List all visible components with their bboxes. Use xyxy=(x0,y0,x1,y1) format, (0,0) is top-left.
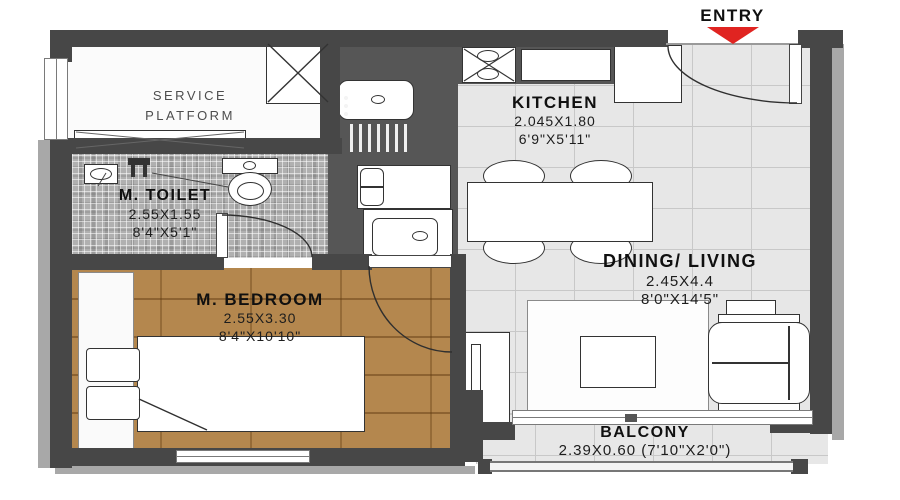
toilet-name: M. TOILET xyxy=(70,186,260,206)
sofa-cushion-line xyxy=(712,362,788,364)
sink-drain-icon xyxy=(371,95,385,104)
dining-living-dim-ft: 8'0"X14'5" xyxy=(540,291,820,310)
entry-label: ENTRY xyxy=(675,5,790,26)
sofa-back-line xyxy=(788,326,790,400)
coffee-table-icon xyxy=(580,336,656,388)
balcony-railing xyxy=(490,461,793,472)
wall-top xyxy=(50,30,668,47)
balcony-dim: 2.39X0.60 (7'10"X2'0") xyxy=(480,442,810,459)
bedroom-dim-ft: 8'4"X10'10" xyxy=(150,328,370,346)
sliding-door-balcony xyxy=(512,410,813,425)
wall-left xyxy=(50,138,72,468)
kitchen-platform xyxy=(521,49,611,81)
sliding-door-handle xyxy=(625,414,637,422)
right-wall-shadow xyxy=(832,44,844,440)
window-service xyxy=(44,58,68,140)
wall-service-right xyxy=(320,30,340,142)
drainboard-icon xyxy=(350,124,412,152)
toilet-dim-ft: 8'4"X5'1" xyxy=(70,224,260,242)
wc-flush-icon xyxy=(243,161,256,170)
kitchen-dim-m: 2.045X1.80 xyxy=(455,113,655,131)
bedroom-name: M. BEDROOM xyxy=(150,289,370,310)
dining-table-icon xyxy=(467,182,653,242)
wall-balcony-left xyxy=(450,390,483,462)
bedroom-dim-m: 2.55X3.30 xyxy=(150,310,370,328)
service-platform-label-line1: SERVICE xyxy=(105,86,275,106)
washing-machine-icon xyxy=(372,218,438,256)
entry-door-leaf xyxy=(789,44,802,104)
wall-toilet-top xyxy=(50,138,342,154)
bedroom-label-block: M. BEDROOM 2.55X3.30 8'4"X10'10" xyxy=(150,289,370,345)
dining-living-name: DINING/ LIVING xyxy=(540,250,820,273)
burner-icon xyxy=(477,50,499,62)
bedroom-door-leaf xyxy=(368,255,452,268)
kitchen-label-block: KITCHEN 2.045X1.80 6'9"X5'11" xyxy=(455,92,655,148)
dining-living-label-block: DINING/ LIVING 2.45X4.4 8'0"X14'5" xyxy=(540,250,820,310)
bed-icon xyxy=(137,336,365,432)
pillow-icon xyxy=(86,386,140,420)
burner-icon xyxy=(477,68,499,80)
wall-toilet-bottom-left xyxy=(50,254,224,270)
wall-toilet-bottom-right xyxy=(312,254,372,270)
entry-label-block: ENTRY xyxy=(675,5,790,26)
balcony-label-block: BALCONY 2.39X0.60 (7'10"X2'0") xyxy=(480,424,810,460)
pillow-icon xyxy=(86,348,140,382)
tap-dot-icon xyxy=(344,104,348,108)
shower-pipe-icon xyxy=(143,165,147,177)
bottom-wall-shadow xyxy=(55,466,475,474)
washer-knob-icon xyxy=(412,231,428,241)
tap-dot-icon xyxy=(344,112,348,116)
window-bedroom xyxy=(176,450,310,463)
toilet-label-block: M. TOILET 2.55X1.55 8'4"X5'1" xyxy=(70,186,260,241)
balcony-name: BALCONY xyxy=(480,424,810,442)
shower-pipe-icon xyxy=(131,165,135,177)
entry-arrow-icon xyxy=(707,27,759,44)
railing-post-right xyxy=(791,459,808,474)
service-platform-label-line2: PLATFORM xyxy=(105,106,275,126)
window-mullion xyxy=(56,59,57,139)
shower-mixer-icon xyxy=(128,158,150,165)
utility-device-split xyxy=(361,186,383,188)
window-mullion xyxy=(177,456,309,457)
kitchen-name: KITCHEN xyxy=(455,92,655,113)
floor-plan: ENTRY SERVICE PLATFORM KITCHEN 2.045X1.8… xyxy=(0,0,900,500)
tap-dot-icon xyxy=(344,96,348,100)
service-platform-label-block: SERVICE PLATFORM xyxy=(105,86,275,126)
kitchen-dim-ft: 6'9"X5'11" xyxy=(455,131,655,149)
sliding-door-track xyxy=(513,417,812,418)
dining-living-dim-m: 2.45X4.4 xyxy=(540,273,820,292)
toilet-dim-m: 2.55X1.55 xyxy=(70,206,260,224)
basin-bowl xyxy=(90,168,112,180)
left-wall-shadow xyxy=(38,140,50,468)
wall-right xyxy=(810,36,832,434)
